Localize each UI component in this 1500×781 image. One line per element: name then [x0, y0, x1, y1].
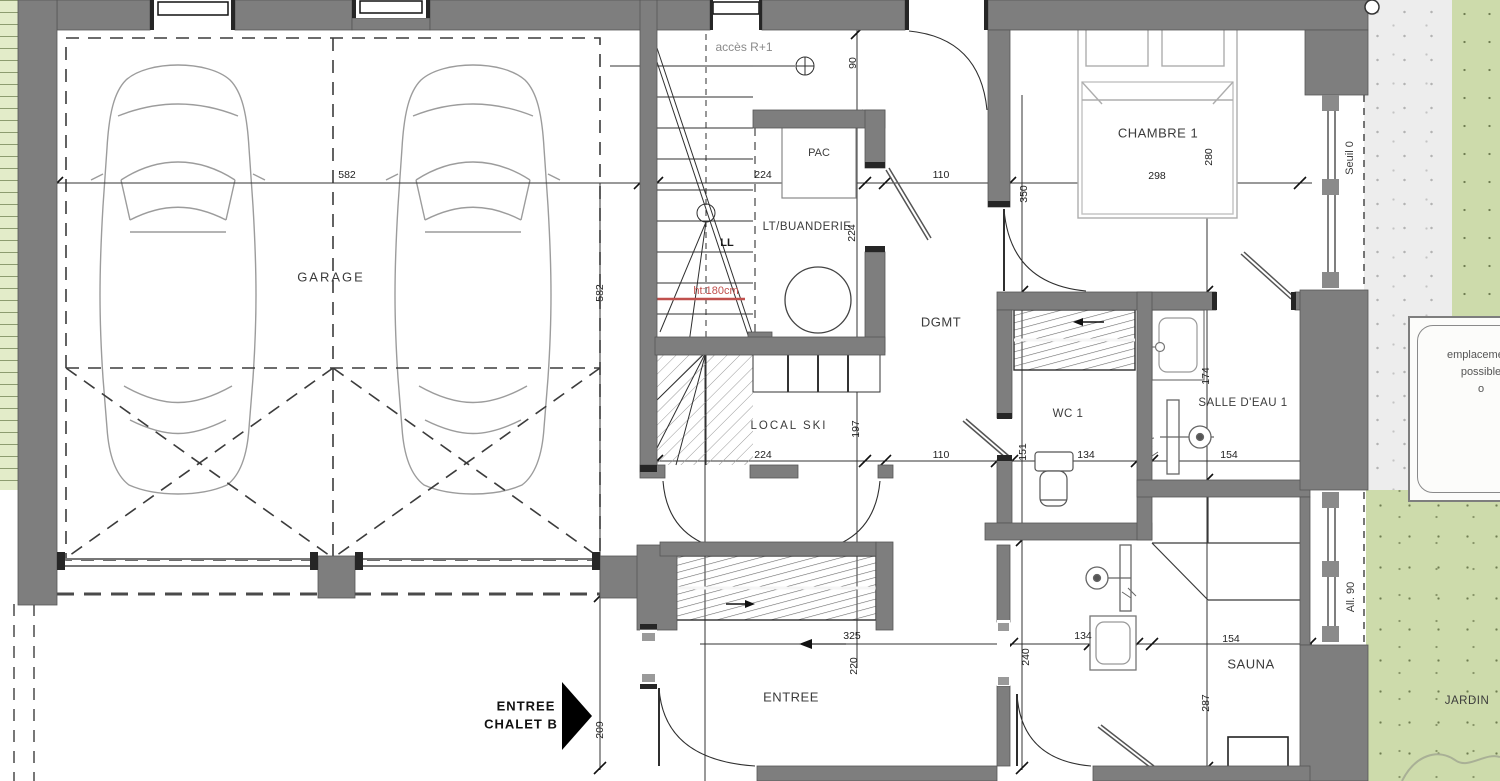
label-layer: GARAGECHAMBRE 1LT/BUANDERIELOCAL SKIDGMT… [0, 0, 1500, 781]
room-label-lt-buanderie: LT/BUANDERIE [763, 221, 852, 233]
dim-sauna-depth: 287 [1200, 694, 1212, 712]
equipment-label-ll: LL [720, 237, 733, 249]
room-label-sauna: SAUNA [1227, 657, 1274, 672]
floor-plan-canvas: GARAGECHAMBRE 1LT/BUANDERIELOCAL SKIDGMT… [0, 0, 1500, 781]
annotation-seuil-0: Seuil 0 [1344, 141, 1356, 175]
dim-hall-width-top: 110 [933, 169, 950, 181]
dim-entry-side: 209 [594, 721, 606, 739]
dim-local-ski-depth: 197 [850, 420, 862, 438]
equipment-label-pac: PAC [808, 147, 830, 159]
note-line-2: possible [1461, 366, 1500, 378]
room-label-local-ski: LOCAL SKI [750, 420, 827, 432]
dim-entree-width: 325 [843, 630, 861, 642]
room-label-chambre-1: CHAMBRE 1 [1118, 126, 1198, 141]
annotation-ht-180cm: ht:180cm [693, 285, 738, 297]
room-label-entree: ENTREE [763, 690, 819, 705]
dim-salle-deau-width: 154 [1220, 449, 1238, 461]
entry-arrow-label-line2: CHALET B [484, 717, 558, 732]
dim-chambre-width: 298 [1148, 170, 1166, 182]
dim-chambre-height: 350 [1018, 185, 1030, 203]
room-label-dgmt: DGMT [921, 315, 961, 330]
dim-garage-depth: 582 [594, 284, 606, 302]
dim-shower-room-width: 134 [1074, 630, 1092, 642]
dim-sauna-width: 154 [1222, 633, 1240, 645]
dim-chambre-depth: 280 [1203, 148, 1215, 166]
room-label-jardin: JARDIN [1445, 695, 1490, 707]
dim-buanderie-depth: 224 [846, 224, 858, 242]
dim-salle-deau-depth: 174 [1200, 367, 1212, 385]
dim-local-ski-width: 224 [754, 449, 772, 461]
dim-wc-depth: 151 [1017, 443, 1029, 461]
room-label-garage: GARAGE [297, 270, 365, 285]
room-label-salle-deau-1: SALLE D'EAU 1 [1198, 397, 1287, 409]
room-label-wc-1: WC 1 [1053, 408, 1084, 420]
entry-arrow-label-line1: ENTREE [497, 699, 556, 714]
annotation-acces-r1: accès R+1 [715, 40, 772, 54]
note-line-3: o [1478, 383, 1484, 395]
dim-entree-depth: 220 [848, 657, 860, 675]
dim-hall-width-mid: 110 [933, 449, 950, 461]
dim-stairwell-width: 224 [754, 169, 772, 181]
dim-door-top: 90 [847, 57, 859, 69]
note-line-1: emplacement [1447, 349, 1500, 361]
dim-shower-room-depth: 240 [1020, 648, 1032, 666]
annotation-all-90: All. 90 [1345, 582, 1357, 613]
dim-wc-width: 134 [1077, 449, 1095, 461]
dim-garage-width: 582 [338, 169, 356, 181]
